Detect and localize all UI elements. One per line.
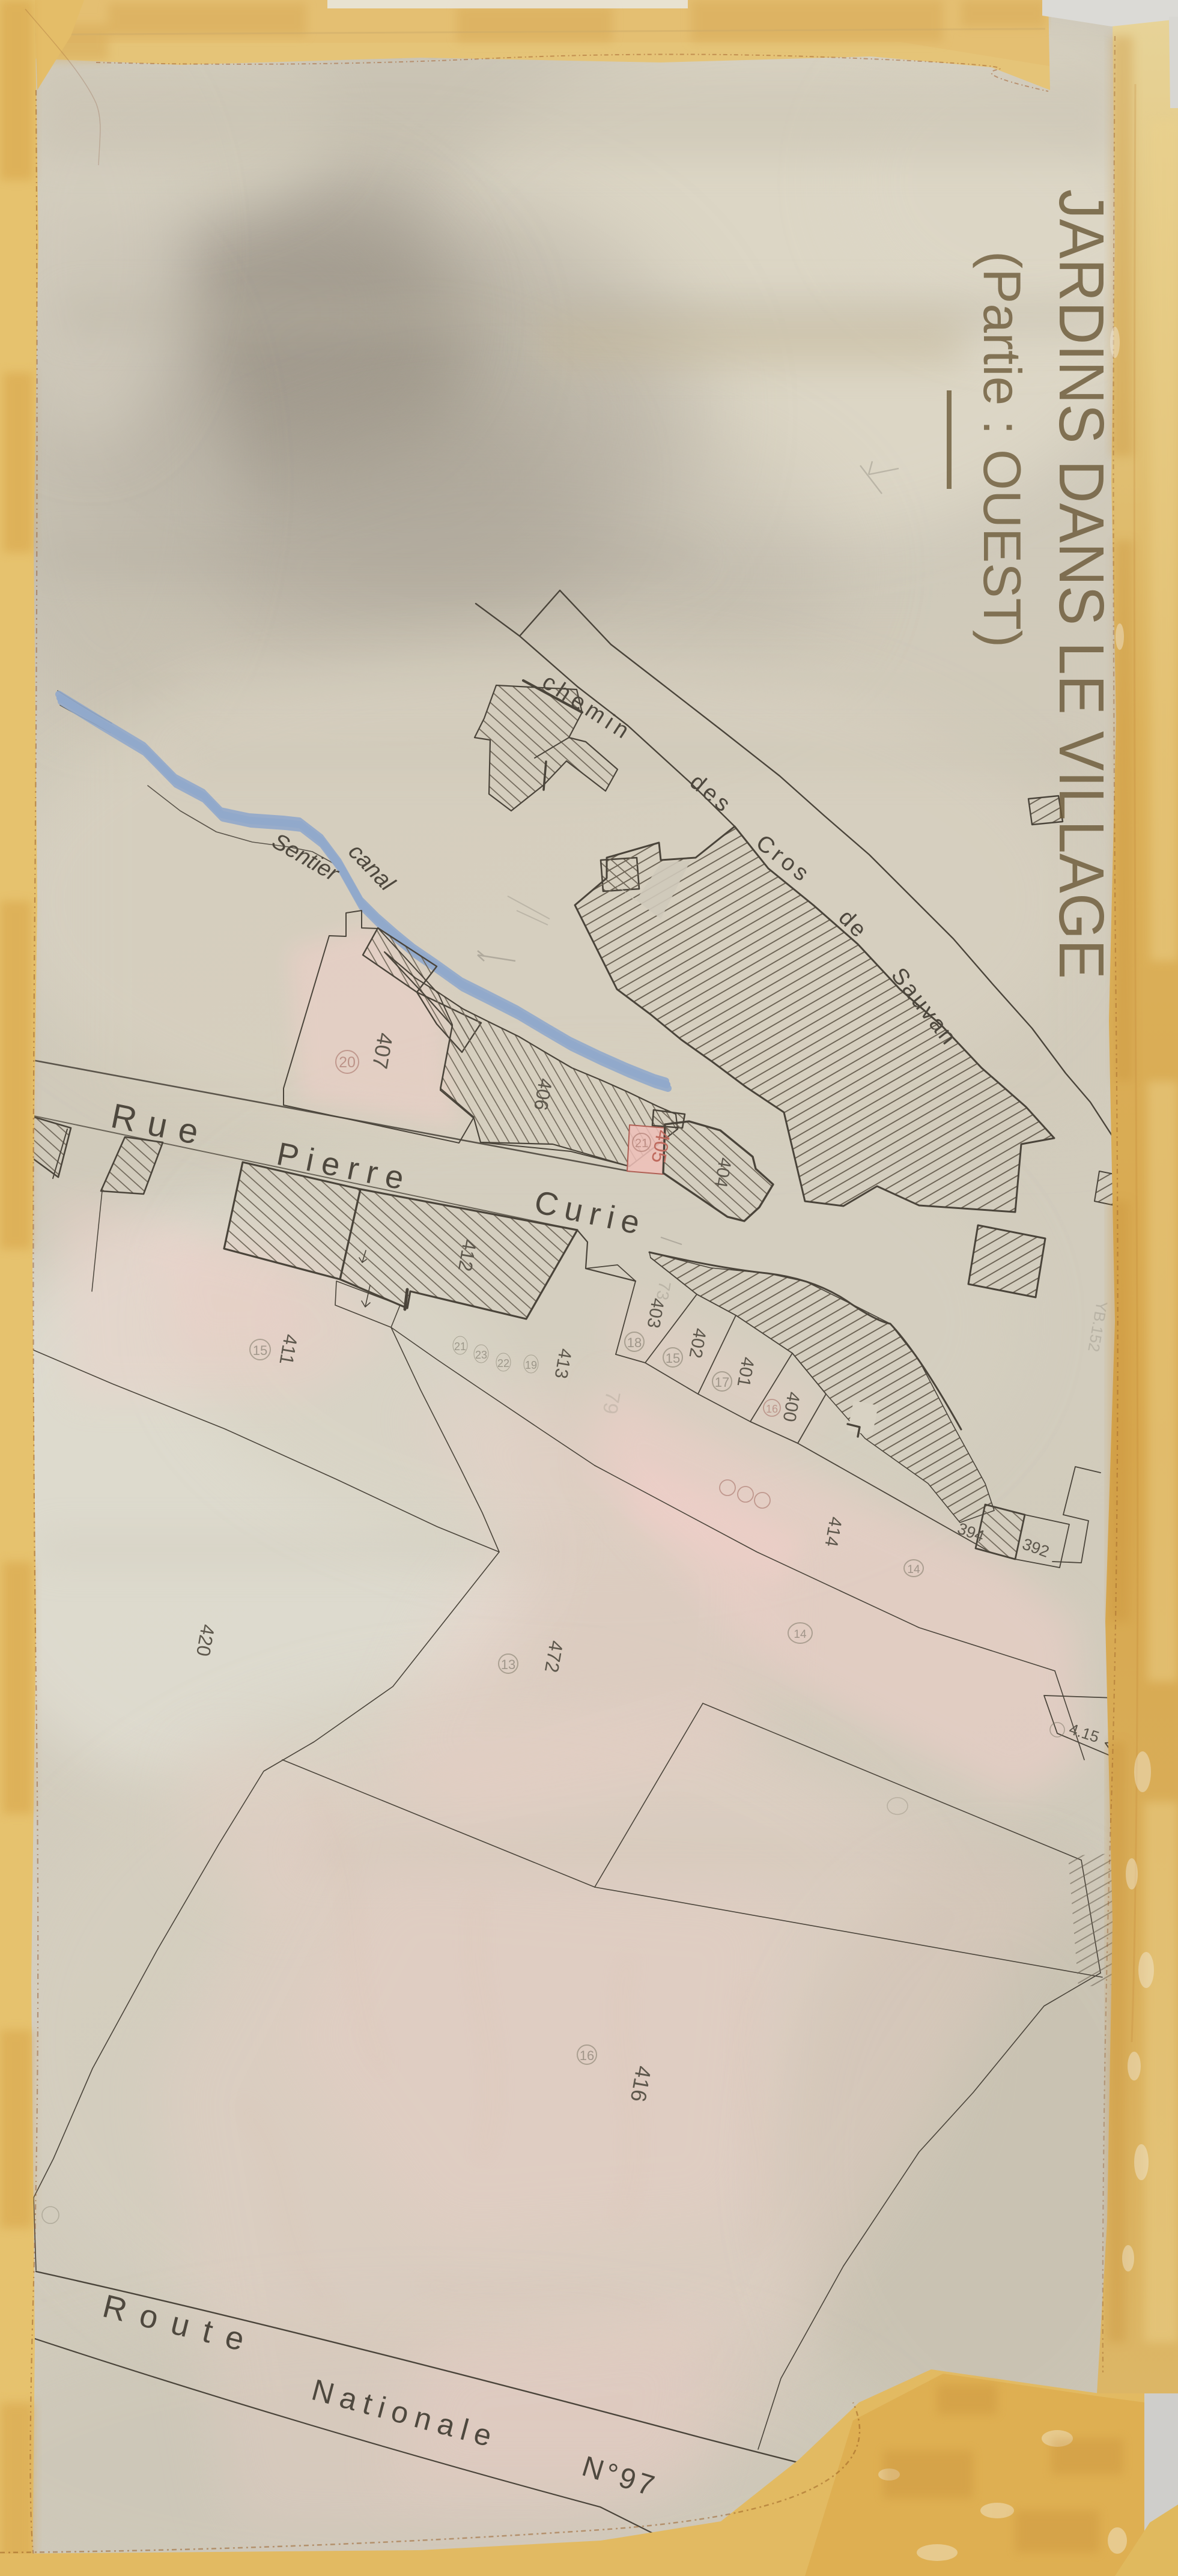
svg-text:73: 73 [653,1280,675,1302]
svg-text:23: 23 [475,1349,487,1361]
svg-text:79: 79 [598,1390,625,1416]
svg-text:16: 16 [580,2048,594,2063]
svg-text:14: 14 [794,1628,807,1641]
svg-text:21: 21 [635,1137,648,1150]
svg-text:20: 20 [339,1054,356,1071]
svg-text:15: 15 [666,1351,680,1366]
svg-text:19: 19 [525,1359,537,1371]
svg-text:15: 15 [253,1343,267,1358]
svg-text:17: 17 [715,1375,729,1390]
svg-text:14: 14 [907,1563,920,1576]
svg-text:18: 18 [627,1335,642,1350]
svg-text:22: 22 [497,1357,509,1369]
svg-text:JARDINS DANS LE VILLAGE: JARDINS DANS LE VILLAGE [1046,189,1117,979]
svg-text:13: 13 [501,1657,515,1672]
svg-text:(Partie : OUEST): (Partie : OUEST) [973,251,1032,647]
svg-text:21: 21 [454,1341,466,1353]
svg-text:16: 16 [766,1403,778,1415]
